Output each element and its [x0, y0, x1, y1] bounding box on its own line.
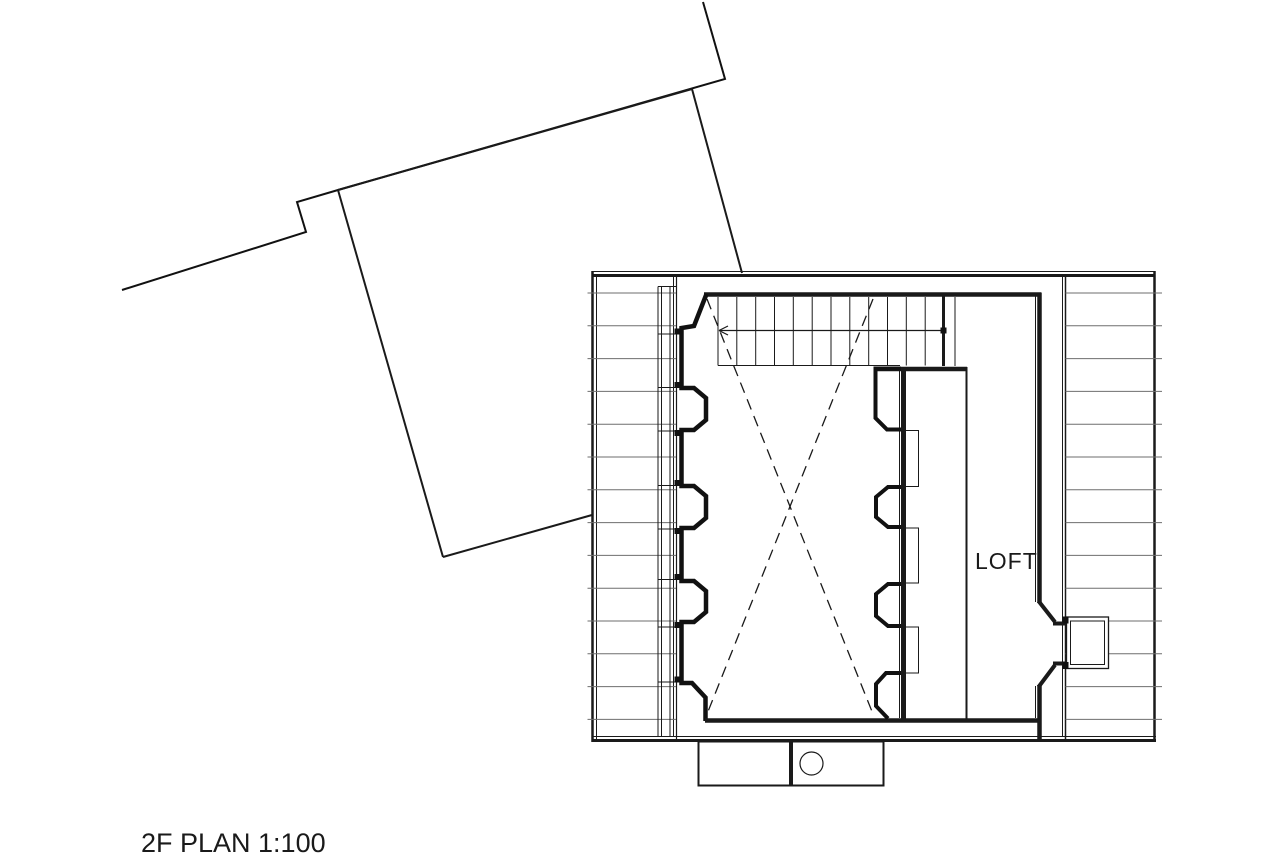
- mid-wall-foot: [876, 673, 901, 719]
- lower-roof-right-edge: [692, 89, 742, 273]
- stair-arrow-stroke: [719, 326, 728, 331]
- loft-door-chamfer-upper: [1039, 601, 1056, 622]
- mid-wall-bump: [876, 487, 901, 527]
- site-boundary: [122, 2, 725, 290]
- stair-start-dot: [941, 328, 947, 334]
- left-wall-profile: [682, 294, 707, 721]
- porch-circle: [800, 752, 823, 775]
- dormer-post: [1063, 617, 1069, 624]
- loft-room-label: LOFT: [975, 548, 1038, 575]
- porch-box-left: [699, 742, 791, 786]
- floor-plan-drawing: [0, 0, 1280, 853]
- loft-shelf-rect: [906, 528, 919, 583]
- lower-roof-top-edge: [338, 89, 692, 190]
- mid-wall-top-block: [876, 369, 902, 430]
- loft-door-chamfer-lower: [1039, 665, 1056, 687]
- mid-wall-bump: [876, 584, 901, 626]
- plan-caption: 2F PLAN 1:100: [141, 828, 326, 853]
- loft-shelf-rect: [906, 627, 919, 673]
- porch-box-right: [792, 742, 884, 786]
- dormer-post: [1063, 662, 1069, 669]
- lower-roof-left-edge: [338, 190, 443, 557]
- lower-roof-bottom-edge: [443, 515, 592, 557]
- dormer-box-outer: [1067, 617, 1109, 669]
- loft-shelf-rect: [906, 431, 919, 487]
- floor-plan-page: LOFT 2F PLAN 1:100: [0, 0, 1280, 853]
